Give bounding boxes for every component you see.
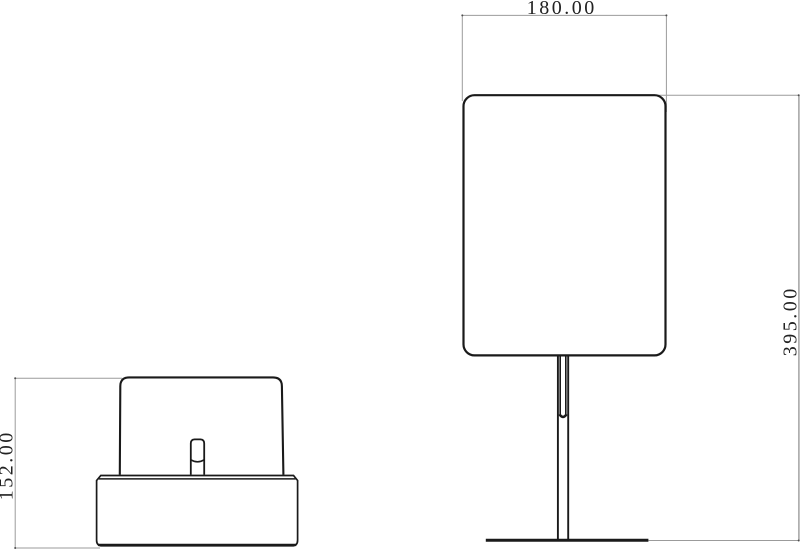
svg-text:152.00: 152.00: [0, 430, 18, 500]
svg-text:395.00: 395.00: [780, 286, 800, 356]
svg-text:180.00: 180.00: [527, 0, 597, 19]
